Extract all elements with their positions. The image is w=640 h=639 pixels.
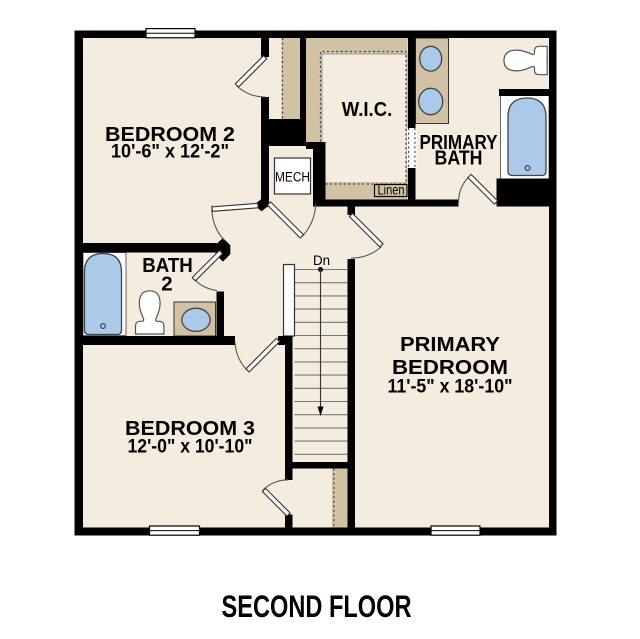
svg-text:10'-6" x 12'-2": 10'-6" x 12'-2": [111, 142, 229, 163]
svg-text:Dn: Dn: [313, 253, 330, 268]
svg-text:PRIMARY: PRIMARY: [400, 333, 500, 356]
svg-text:Linen: Linen: [378, 183, 405, 198]
svg-text:W.I.C.: W.I.C.: [342, 98, 393, 121]
svg-text:2: 2: [161, 273, 172, 296]
svg-text:MECH: MECH: [275, 170, 310, 185]
svg-text:SECOND FLOOR: SECOND FLOOR: [222, 588, 412, 624]
svg-text:BEDROOM: BEDROOM: [392, 356, 508, 379]
svg-text:11'-5" x 18'-10": 11'-5" x 18'-10": [388, 377, 513, 398]
svg-text:12'-0" x 10'-10": 12'-0" x 10'-10": [128, 437, 253, 458]
svg-text:BATH: BATH: [435, 147, 483, 170]
